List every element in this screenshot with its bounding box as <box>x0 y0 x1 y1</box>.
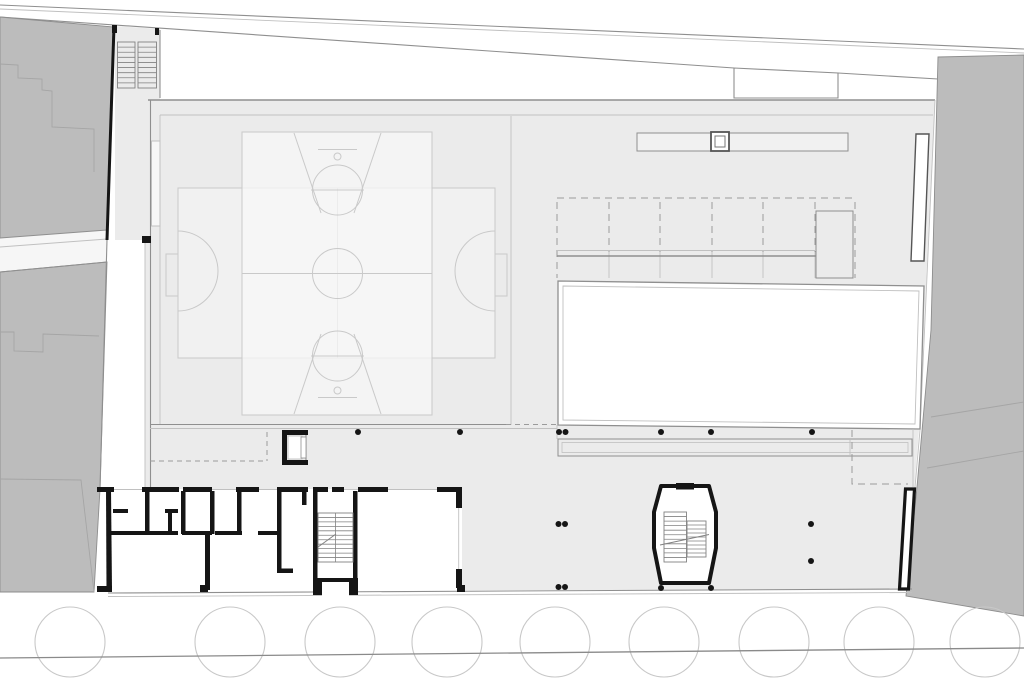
column-dot <box>808 558 814 564</box>
column-dot <box>708 429 714 435</box>
hall-stair <box>654 483 716 583</box>
tree <box>35 607 105 677</box>
floor-plan-drawing <box>0 0 1024 683</box>
column-dot <box>355 429 361 435</box>
tree <box>629 607 699 677</box>
elevator-door <box>301 437 306 458</box>
roof-box <box>734 68 838 98</box>
street-line <box>0 648 1024 658</box>
trees <box>35 607 1020 677</box>
basketball-court <box>242 132 432 415</box>
column-dot <box>556 429 562 435</box>
column-dot <box>562 584 568 590</box>
bleacher-cabinet <box>816 211 853 278</box>
column-dot <box>457 429 463 435</box>
tree <box>195 607 265 677</box>
column-dot <box>808 521 814 527</box>
rooms-block <box>97 487 462 592</box>
tree <box>412 607 482 677</box>
column-dot <box>556 584 562 590</box>
facade-door-gap <box>322 582 349 597</box>
column-dot <box>556 521 562 527</box>
column-dot <box>658 429 664 435</box>
tree <box>844 607 914 677</box>
neighbor-building-upper-left <box>0 17 114 240</box>
gallery-bar <box>637 132 848 151</box>
rooms-outer-wall-left <box>106 489 112 590</box>
column-dot <box>708 585 714 591</box>
void-opening <box>558 281 924 429</box>
tree <box>520 607 590 677</box>
neighbor-buildings-left <box>0 17 114 592</box>
floor-plan-page <box>0 0 1024 683</box>
column-dot <box>809 429 815 435</box>
column-dot <box>562 521 568 527</box>
tree <box>950 607 1020 677</box>
neighbor-building-lower-left <box>0 262 107 592</box>
column-dot <box>563 429 569 435</box>
tree <box>305 607 375 677</box>
column-box <box>711 132 729 151</box>
rooms-floor <box>106 489 462 590</box>
column-dot <box>658 585 664 591</box>
tree <box>739 607 809 677</box>
wall-pilaster-left <box>152 141 161 226</box>
